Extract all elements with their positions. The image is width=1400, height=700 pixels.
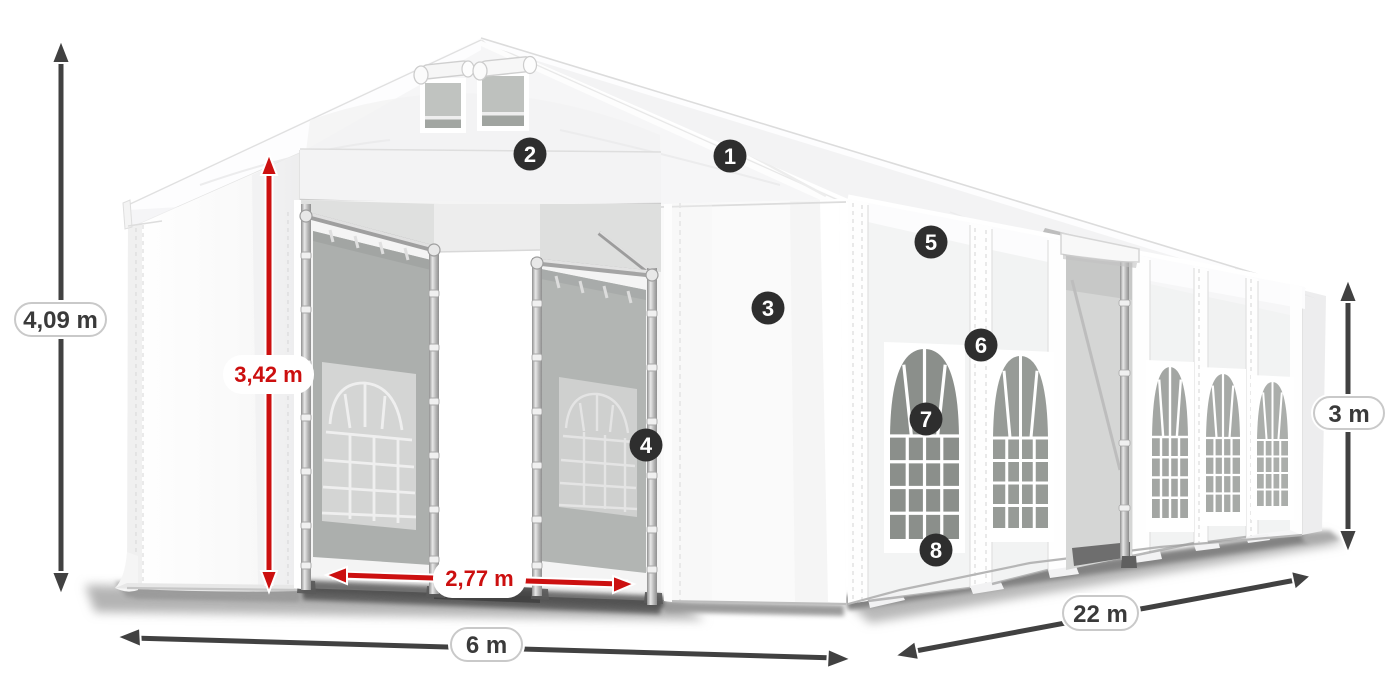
svg-text:7: 7 bbox=[920, 407, 932, 432]
svg-text:4,09 m: 4,09 m bbox=[23, 307, 98, 334]
svg-text:3: 3 bbox=[762, 296, 774, 321]
svg-text:2,77 m: 2,77 m bbox=[445, 566, 514, 591]
svg-text:8: 8 bbox=[930, 538, 942, 563]
svg-text:4: 4 bbox=[640, 433, 653, 458]
svg-text:6: 6 bbox=[975, 333, 987, 358]
svg-text:3,42 m: 3,42 m bbox=[234, 362, 303, 387]
svg-text:6 m: 6 m bbox=[466, 632, 507, 659]
svg-text:22 m: 22 m bbox=[1073, 601, 1128, 628]
svg-text:3 m: 3 m bbox=[1328, 401, 1369, 428]
svg-text:1: 1 bbox=[724, 144, 736, 169]
svg-text:5: 5 bbox=[925, 230, 937, 255]
svg-text:2: 2 bbox=[524, 142, 536, 167]
